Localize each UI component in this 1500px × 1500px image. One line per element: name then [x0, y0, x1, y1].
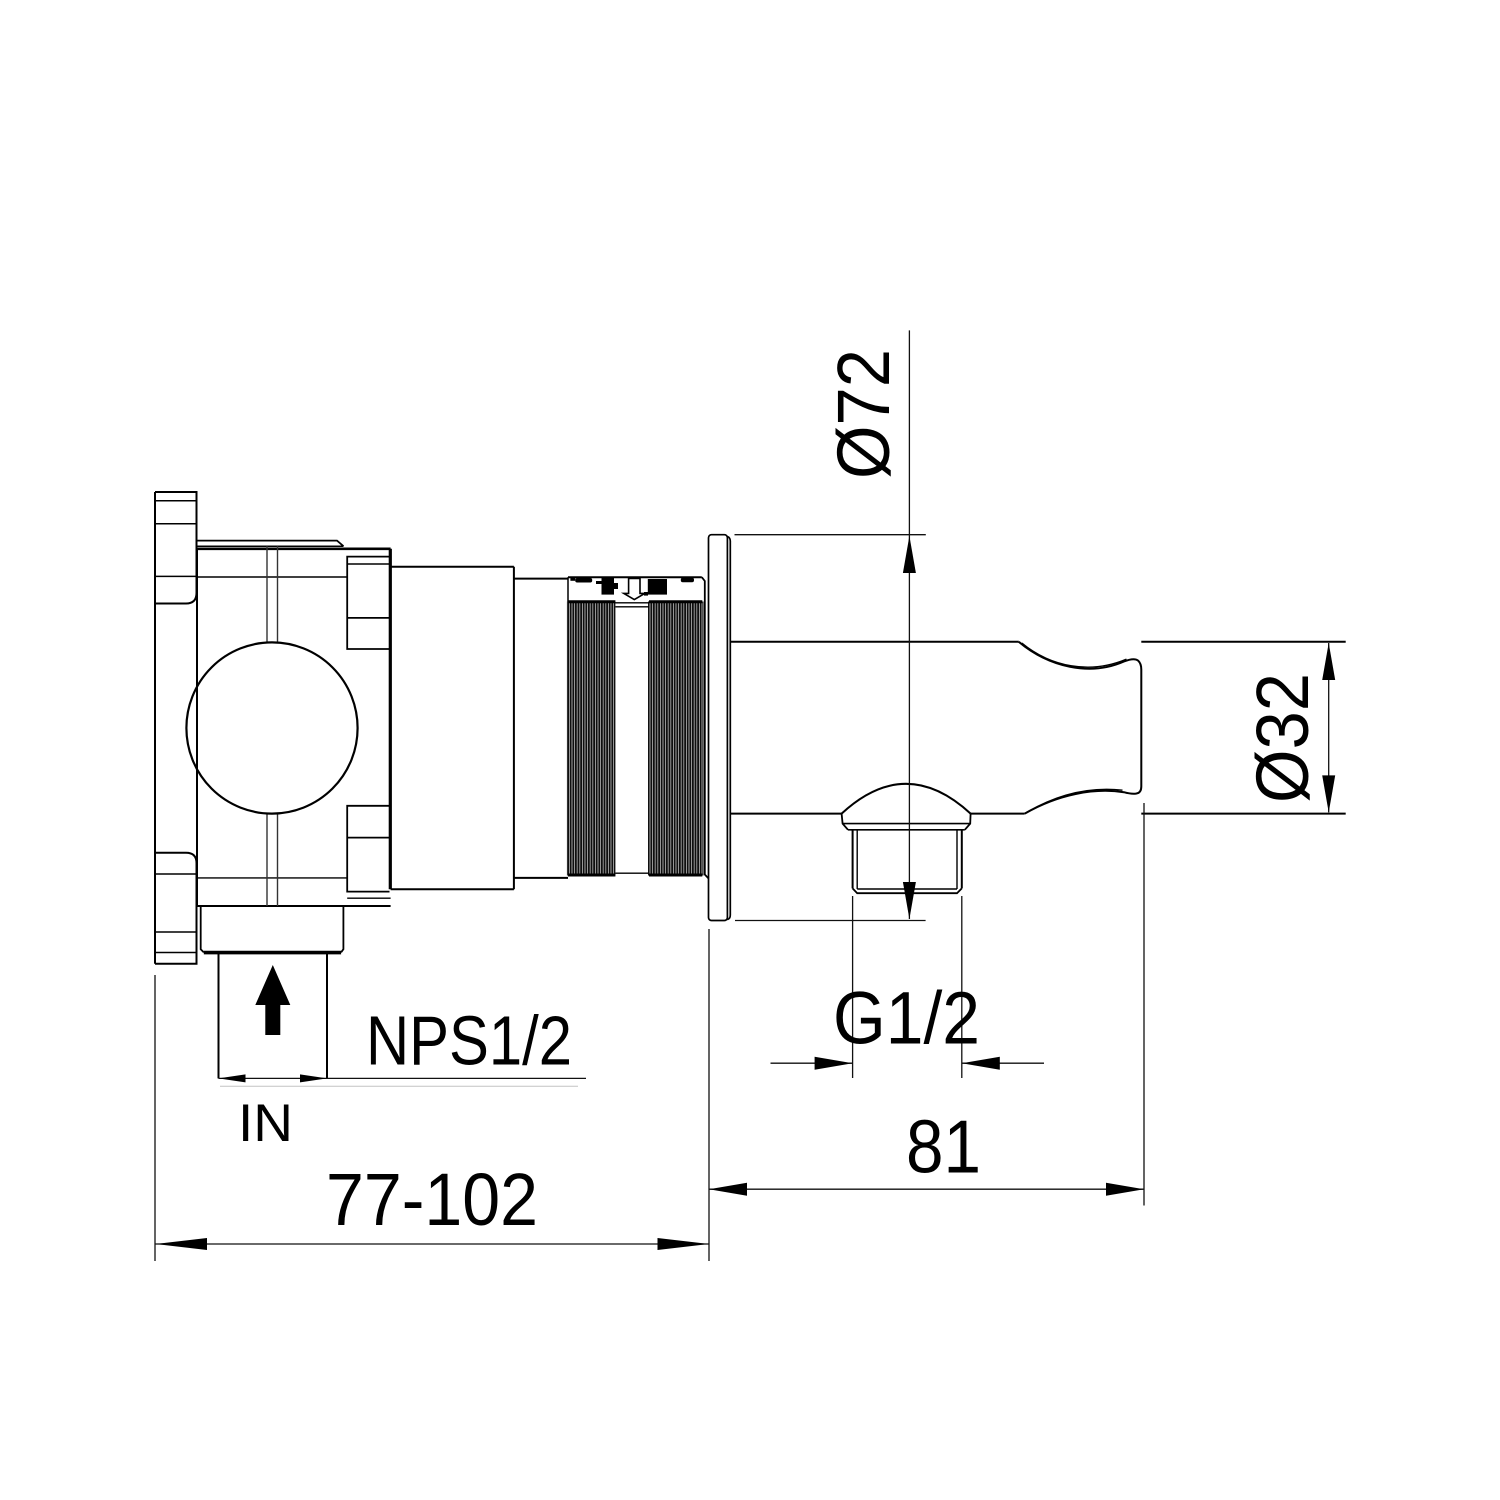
svg-text:G1/2: G1/2: [833, 976, 980, 1059]
svg-text:Ø72: Ø72: [822, 349, 905, 479]
svg-text:IN: IN: [238, 1094, 293, 1153]
svg-text:81: 81: [906, 1105, 981, 1189]
svg-text:NPS1/2: NPS1/2: [366, 1002, 572, 1080]
svg-text:77-102: 77-102: [326, 1158, 538, 1241]
svg-text:Ø32: Ø32: [1241, 673, 1324, 803]
